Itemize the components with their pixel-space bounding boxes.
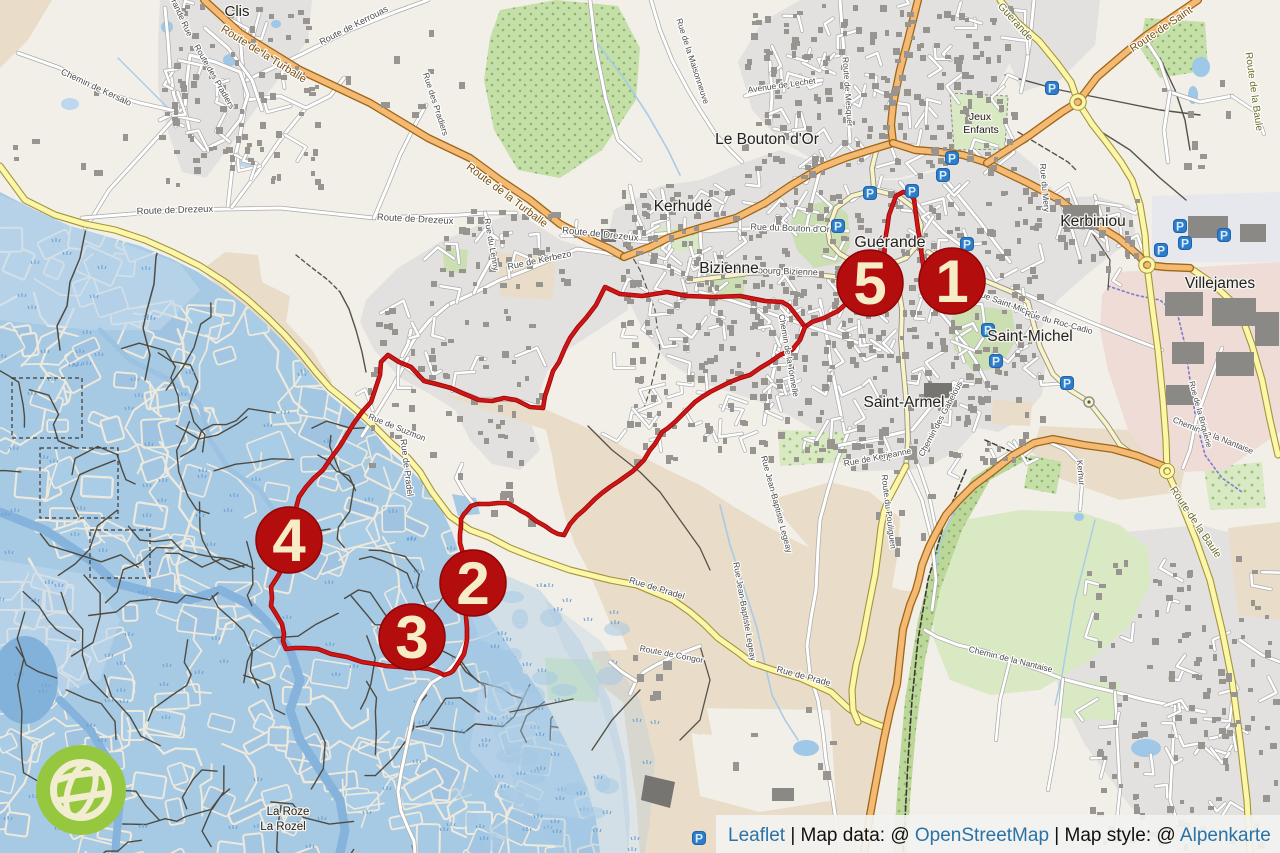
svg-text:P: P: [834, 220, 842, 234]
svg-text:P: P: [1063, 377, 1071, 391]
svg-text:Kerhudé: Kerhudé: [654, 198, 713, 215]
svg-text:P: P: [1048, 82, 1056, 96]
svg-text:P: P: [1157, 244, 1165, 258]
svg-text:Enfants: Enfants: [963, 124, 999, 136]
svg-text:Bizienne: Bizienne: [699, 260, 758, 277]
svg-text:Le Bouton d'Or: Le Bouton d'Or: [715, 131, 819, 148]
svg-text:P: P: [992, 355, 1000, 369]
svg-text:Villejames: Villejames: [1185, 275, 1256, 292]
svg-text:P: P: [948, 152, 956, 166]
svg-text:3: 3: [395, 604, 428, 671]
svg-text:P: P: [1220, 229, 1228, 243]
svg-text:P: P: [866, 187, 874, 201]
svg-text:P: P: [939, 169, 947, 183]
svg-text:1: 1: [935, 248, 968, 315]
svg-text:La Rozel: La Rozel: [260, 821, 305, 833]
svg-text:P: P: [1181, 237, 1189, 251]
svg-text:P: P: [1176, 220, 1184, 234]
svg-text:Leaflet | Map data: @ OpenStre: Leaflet | Map data: @ OpenStreetMap | Ma…: [728, 825, 1271, 846]
svg-text:P: P: [695, 832, 703, 846]
svg-text:P: P: [908, 185, 916, 199]
svg-text:Jeux: Jeux: [969, 111, 992, 123]
svg-text:5: 5: [853, 250, 886, 317]
svg-text:La Roze: La Roze: [267, 806, 310, 818]
svg-text:Clis: Clis: [225, 3, 250, 20]
svg-text:4: 4: [272, 507, 306, 574]
svg-text:2: 2: [456, 550, 489, 617]
svg-text:Saint-Michel: Saint-Michel: [987, 328, 1072, 345]
svg-text:Kerbiniou: Kerbiniou: [1060, 213, 1126, 230]
svg-text:Saint-Armel: Saint-Armel: [864, 394, 945, 411]
svg-text:Guérande: Guérande: [854, 234, 925, 251]
